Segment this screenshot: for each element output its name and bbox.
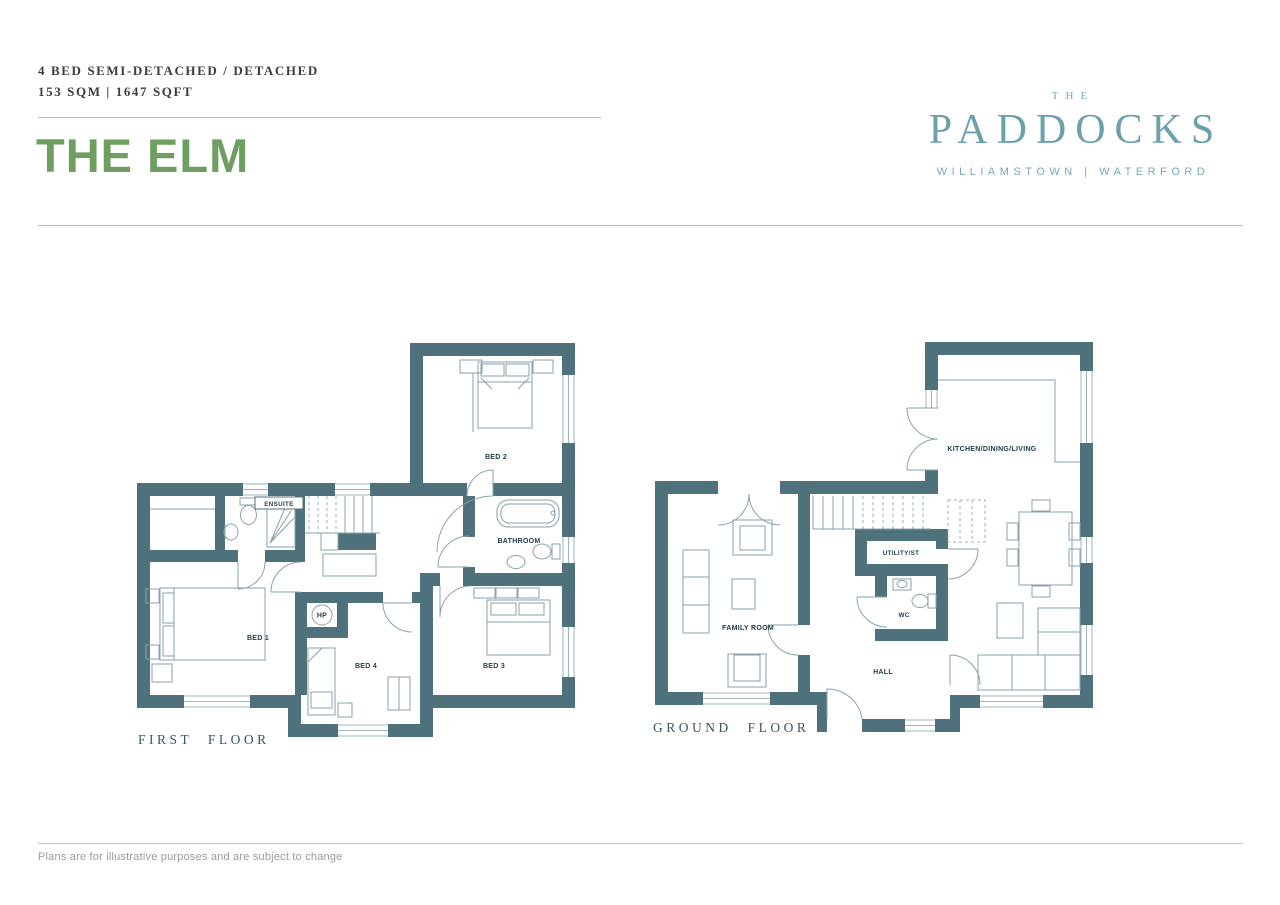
logo-the: THE [912,90,1234,102]
room-label-hp: HP [317,613,327,620]
ground-floor-plan: KITCHEN/DINING/LIVING FAMILY ROOM UTILIT… [655,337,1095,737]
header-divider [38,117,601,118]
room-label-hall: HALL [873,669,893,676]
floorplan-page: 4 BED SEMI-DETACHED / DETACHED 153 SQM |… [0,0,1280,905]
room-label-bathroom: BATHROOM [497,538,540,545]
room-label-kitchen: KITCHEN/DINING/LIVING [947,446,1036,453]
room-label-bed2: BED 2 [485,454,507,461]
room-label-family-room: FAMILY ROOM [722,625,774,632]
page-title: THE ELM [36,128,249,183]
ground-floor-room-labels: KITCHEN/DINING/LIVING FAMILY ROOM UTILIT… [722,446,1037,676]
top-divider [38,225,1243,226]
ground-floor-caption: GROUND FLOOR [653,720,809,736]
development-logo: THE PADDOCKS WILLIAMSTOWN | WATERFORD [912,90,1234,178]
room-label-bed1: BED 1 [247,635,269,642]
logo-location: WILLIAMSTOWN | WATERFORD [912,166,1234,178]
house-type-label: 4 BED SEMI-DETACHED / DETACHED [38,63,319,79]
first-floor-caption: FIRST FLOOR [138,732,270,748]
first-floor-plan: ENSUITE BED 1 BED 2 BED 3 BED 4 BATHROOM… [137,337,577,744]
ground-floor-doors [718,408,980,719]
disclaimer-text: Plans are for illustrative purposes and … [38,851,342,863]
room-label-ensuite: ENSUITE [264,501,293,508]
footer-divider [38,843,1243,844]
room-label-bed3: BED 3 [483,663,505,670]
room-label-utility: UTILITY/ST [883,550,920,557]
logo-name: PADDOCKS [918,106,1234,154]
room-label-bed4: BED 4 [355,663,377,670]
room-label-wc: WC [898,612,909,619]
house-area-label: 153 SQM | 1647 SQFT [38,84,193,100]
